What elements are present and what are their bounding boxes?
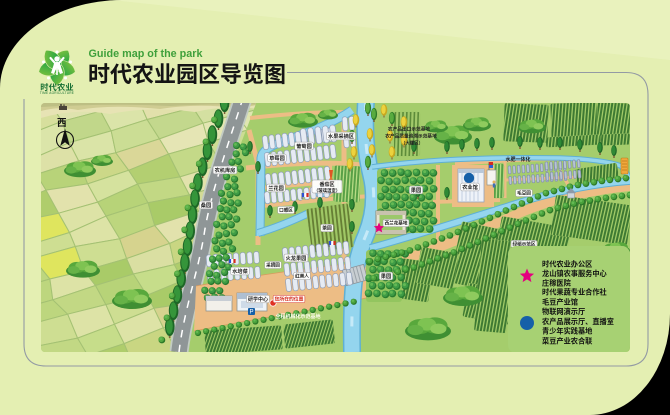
svg-text:果园: 果园: [411, 187, 421, 194]
svg-text:农产品出口示范基地: 农产品出口示范基地: [388, 126, 431, 133]
svg-text:全程机械化示范基地: 全程机械化示范基地: [275, 313, 320, 320]
svg-text:番茄区: 番茄区: [319, 181, 334, 188]
svg-text:农产品展示厅、直播室: 农产品展示厅、直播室: [542, 317, 614, 327]
svg-text:P: P: [249, 310, 253, 316]
svg-text:农机库房: 农机库房: [215, 166, 236, 174]
svg-text:毛豆园: 毛豆园: [517, 190, 531, 197]
svg-text:物联网演示厅: 物联网演示厅: [542, 307, 585, 317]
svg-text:果园: 果园: [381, 273, 391, 280]
svg-text:青少年实践基地: 青少年实践基地: [542, 327, 593, 337]
svg-text:西兰花基地: 西兰花基地: [385, 220, 408, 227]
svg-text:口感区: 口感区: [279, 207, 293, 214]
svg-text:时代果蔬专业合作社: 时代果蔬专业合作社: [542, 288, 607, 298]
svg-text:水果采摘区: 水果采摘区: [328, 132, 354, 140]
svg-text:（大棚区）: （大棚区）: [401, 140, 423, 147]
svg-text:水培菜: 水培菜: [232, 267, 248, 275]
svg-text:菜豆产业农合联: 菜豆产业农合联: [542, 336, 593, 346]
svg-text:采摘园: 采摘园: [266, 262, 280, 269]
svg-text:农产品质量追溯示范基地: 农产品质量追溯示范基地: [385, 133, 437, 140]
svg-text:（玻璃温室）: （玻璃温室）: [314, 187, 340, 194]
svg-text:研学中心: 研学中心: [248, 296, 268, 303]
svg-text:毛豆产业馆: 毛豆产业馆: [542, 298, 578, 308]
svg-text:桑园: 桑园: [201, 201, 211, 209]
svg-text:茶园: 茶园: [321, 225, 332, 232]
svg-text:火龙果园: 火龙果园: [286, 254, 307, 262]
svg-text:草莓园: 草莓园: [269, 154, 285, 162]
svg-text:西: 西: [57, 115, 67, 129]
svg-text:农业馆: 农业馆: [462, 183, 478, 191]
svg-text:您所在的位置: 您所在的位置: [275, 296, 304, 303]
svg-text:红美人: 红美人: [295, 273, 309, 280]
svg-text:葡萄园: 葡萄园: [296, 142, 312, 150]
svg-text:水肥一体化: 水肥一体化: [505, 156, 530, 163]
svg-text:兰花园: 兰花园: [268, 184, 284, 192]
